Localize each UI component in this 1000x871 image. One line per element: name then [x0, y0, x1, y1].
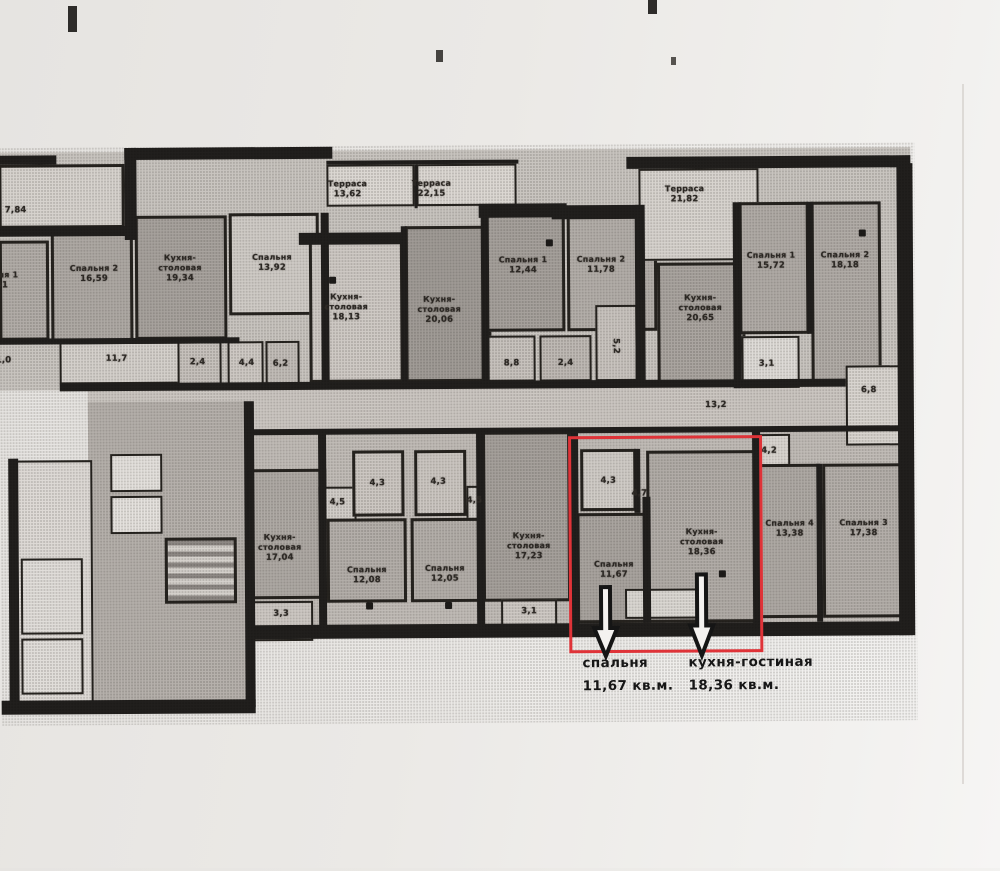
annotation-bedroom-label: спальня: [582, 655, 648, 671]
arrow-down-icon: [594, 587, 617, 656]
annotation-kitchen-label: кухня-гостиная: [688, 654, 813, 671]
annotation-bedroom-area: 11,67 кв.м.: [583, 678, 674, 695]
callout-arrows: [0, 0, 1000, 871]
arrow-down-icon: [690, 574, 713, 655]
floor-plan: 7,84 Спальня 112,41 Спальня 216,59 Кухня…: [0, 0, 1000, 871]
annotation-kitchen-area: 18,36 кв.м.: [689, 677, 780, 694]
